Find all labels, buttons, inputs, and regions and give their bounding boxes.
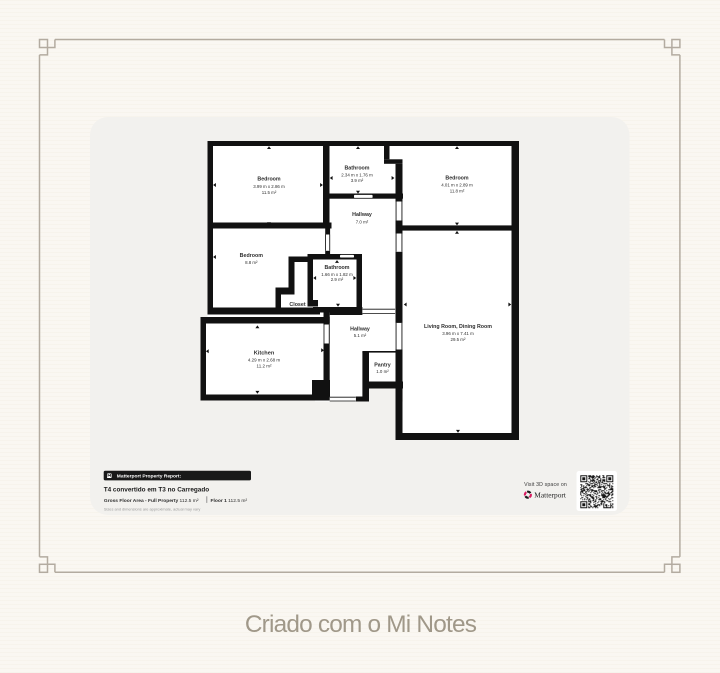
svg-text:3.9 m²: 3.9 m² bbox=[351, 178, 364, 183]
svg-text:Matterport Property Report:: Matterport Property Report: bbox=[117, 474, 182, 480]
svg-text:Visit 3D space on: Visit 3D space on bbox=[524, 482, 567, 488]
svg-text:4.01 m x 2.89 m: 4.01 m x 2.89 m bbox=[441, 182, 473, 187]
svg-text:Matterport: Matterport bbox=[534, 490, 567, 499]
svg-text:4.29 m x 2.68 m: 4.29 m x 2.68 m bbox=[248, 357, 281, 362]
svg-text:Closet: Closet bbox=[289, 302, 305, 308]
svg-text:1.66 m x 1.82 m: 1.66 m x 1.82 m bbox=[321, 272, 353, 277]
svg-text:Pantry: Pantry bbox=[374, 362, 391, 368]
svg-text:Living Room, Dining Room: Living Room, Dining Room bbox=[424, 324, 492, 330]
svg-text:11.5 m²: 11.5 m² bbox=[262, 190, 277, 195]
svg-text:Bathroom: Bathroom bbox=[344, 166, 369, 172]
svg-text:Floor 1 112.5 m²: Floor 1 112.5 m² bbox=[211, 498, 248, 504]
svg-text:Hallway: Hallway bbox=[352, 212, 372, 218]
svg-text:Bedroom: Bedroom bbox=[257, 177, 281, 183]
svg-text:3.99 m x 2.86 m: 3.99 m x 2.86 m bbox=[253, 184, 285, 189]
svg-text:Bathroom: Bathroom bbox=[324, 265, 349, 271]
svg-text:Hallway: Hallway bbox=[350, 326, 370, 332]
svg-text:5.1 m²: 5.1 m² bbox=[354, 333, 367, 338]
svg-text:29.5 m²: 29.5 m² bbox=[451, 337, 466, 342]
svg-text:11.2 m²: 11.2 m² bbox=[257, 363, 272, 368]
svg-text:1.0 m²: 1.0 m² bbox=[376, 369, 389, 374]
svg-text:11.8 m²: 11.8 m² bbox=[450, 189, 465, 194]
svg-text:Gross Floor Area - Full Proper: Gross Floor Area - Full Property 112.5 m… bbox=[104, 498, 199, 504]
svg-text:T4 convertido em T3 no Carrega: T4 convertido em T3 no Carregado bbox=[104, 487, 210, 494]
svg-text:2.9 m²: 2.9 m² bbox=[331, 277, 344, 282]
svg-text:Criado com o Mi Notes: Criado com o Mi Notes bbox=[245, 611, 477, 638]
svg-text:7.0 m²: 7.0 m² bbox=[356, 219, 369, 224]
svg-text:Bedroom: Bedroom bbox=[240, 253, 264, 259]
svg-text:Kitchen: Kitchen bbox=[254, 351, 275, 357]
svg-text:2.34 m x 1.76 m: 2.34 m x 1.76 m bbox=[341, 173, 373, 178]
svg-text:3.96 m x 7.41 m: 3.96 m x 7.41 m bbox=[442, 331, 474, 336]
svg-text:Sizes and dimensions are appro: Sizes and dimensions are approximate, ac… bbox=[104, 506, 201, 511]
svg-text:8.8 m²: 8.8 m² bbox=[245, 260, 258, 265]
svg-text:Bedroom: Bedroom bbox=[445, 175, 469, 181]
